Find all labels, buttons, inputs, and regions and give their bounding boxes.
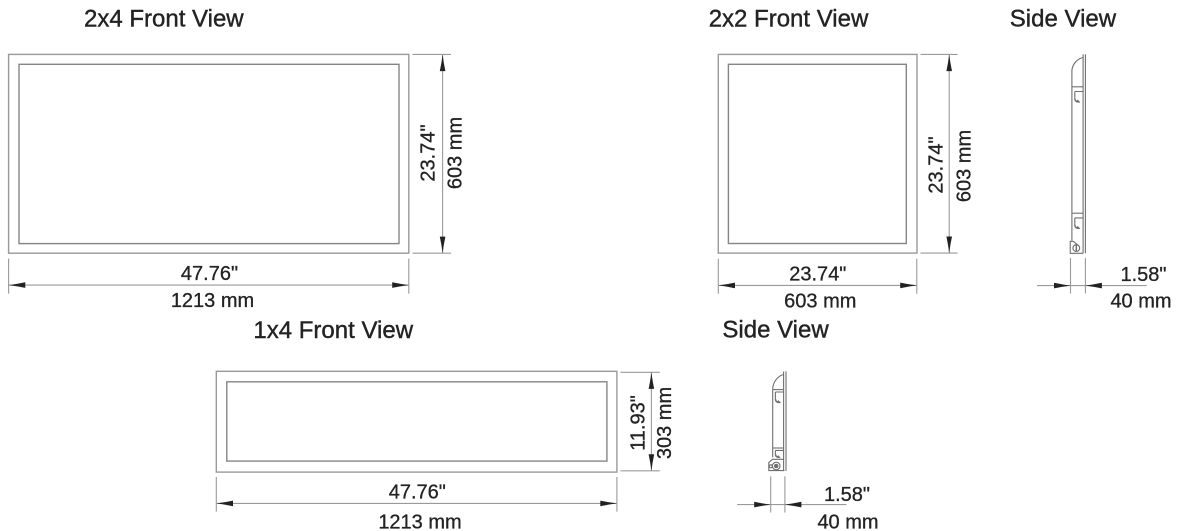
svg-text:23.74": 23.74" <box>926 136 948 193</box>
svg-text:603 mm: 603 mm <box>445 117 467 189</box>
svg-text:1213 mm: 1213 mm <box>171 290 254 312</box>
svg-text:1213 mm: 1213 mm <box>378 511 461 531</box>
svg-text:11.93": 11.93" <box>627 395 649 451</box>
svg-text:1x4 Front View: 1x4 Front View <box>253 317 413 344</box>
svg-text:Side View: Side View <box>722 317 829 344</box>
svg-text:603 mm: 603 mm <box>784 291 856 313</box>
svg-text:1.58": 1.58" <box>1120 264 1166 286</box>
svg-text:2x4 Front View: 2x4 Front View <box>84 6 244 33</box>
svg-text:40 mm: 40 mm <box>817 511 878 531</box>
svg-text:23.74": 23.74" <box>789 263 846 285</box>
svg-text:47.76": 47.76" <box>389 482 446 504</box>
svg-text:Side View: Side View <box>1010 6 1117 33</box>
svg-text:1.58": 1.58" <box>824 484 870 506</box>
svg-text:303 mm: 303 mm <box>654 387 676 459</box>
svg-text:2x2 Front View: 2x2 Front View <box>709 6 869 33</box>
svg-text:40 mm: 40 mm <box>1110 291 1171 313</box>
svg-text:603 mm: 603 mm <box>954 130 976 202</box>
svg-text:47.76": 47.76" <box>181 263 238 285</box>
svg-text:23.74": 23.74" <box>418 124 440 181</box>
